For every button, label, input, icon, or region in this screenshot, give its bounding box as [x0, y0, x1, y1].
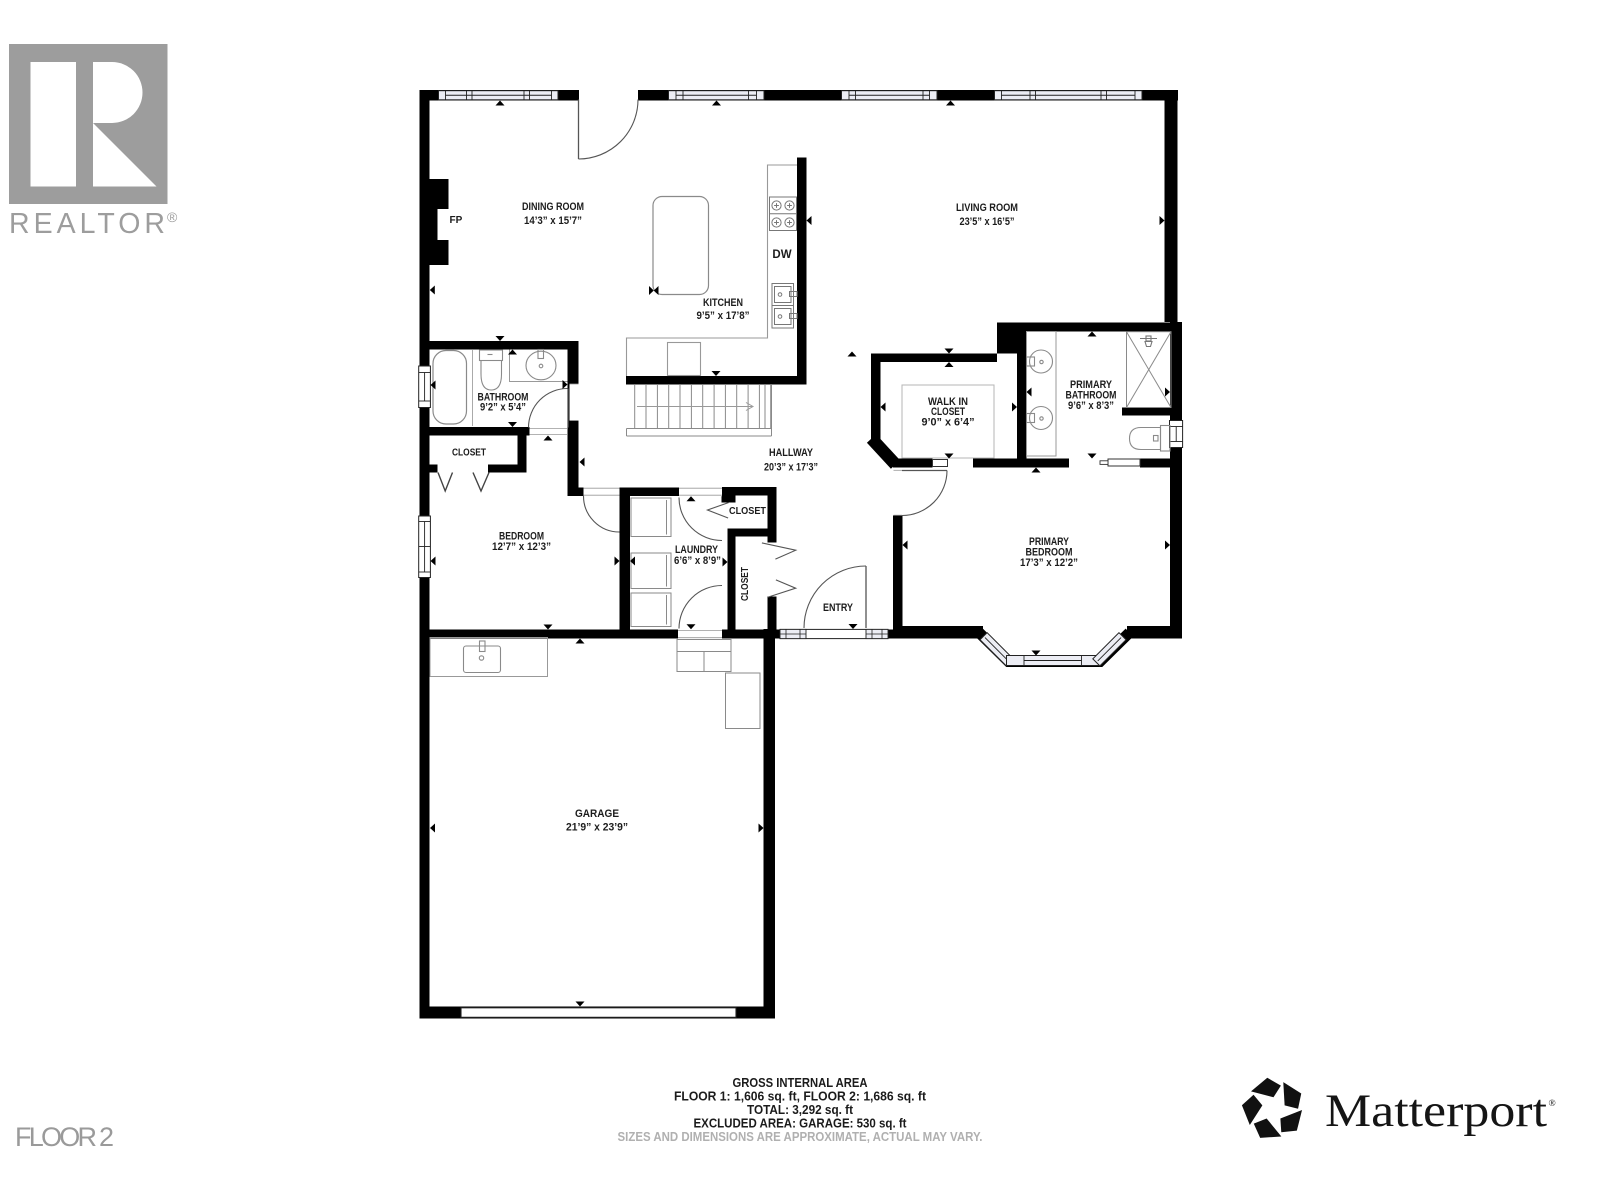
svg-text:SIZES AND DIMENSIONS ARE APPRO: SIZES AND DIMENSIONS ARE APPROXIMATE, AC…: [618, 1129, 983, 1144]
svg-text:21’9” x 23’9”: 21’9” x 23’9”: [566, 822, 628, 834]
svg-text:HALLWAY: HALLWAY: [769, 447, 814, 459]
svg-text:ENTRY: ENTRY: [823, 602, 854, 614]
svg-text:9’0” x 6’4”: 9’0” x 6’4”: [922, 417, 975, 429]
svg-text:CLOSET: CLOSET: [739, 567, 751, 601]
svg-text:DW: DW: [772, 249, 791, 261]
svg-text:CLOSET: CLOSET: [452, 447, 486, 459]
svg-text:FLOOR 2: FLOOR 2: [15, 1122, 115, 1152]
svg-text:LIVING ROOM: LIVING ROOM: [956, 202, 1018, 214]
svg-text:®: ®: [167, 209, 178, 225]
svg-text:DINING ROOM: DINING ROOM: [522, 201, 584, 213]
svg-text:KITCHEN: KITCHEN: [703, 297, 743, 309]
svg-text:17’3” x 12’2”: 17’3” x 12’2”: [1020, 557, 1078, 569]
svg-text:9’5” x 17’8”: 9’5” x 17’8”: [697, 310, 750, 322]
svg-text:9’6” x 8’3”: 9’6” x 8’3”: [1068, 400, 1114, 412]
svg-text:Matterport: Matterport: [1325, 1085, 1547, 1137]
svg-text:12’7” x 12’3”: 12’7” x 12’3”: [492, 541, 551, 553]
svg-text:FP: FP: [450, 215, 463, 226]
svg-text:6’6” x 8’9”: 6’6” x 8’9”: [674, 555, 721, 567]
svg-text:14’3” x 15’7”: 14’3” x 15’7”: [524, 215, 582, 227]
svg-text:23’5” x 16’5”: 23’5” x 16’5”: [960, 216, 1015, 228]
svg-text:CLOSET: CLOSET: [729, 505, 767, 517]
svg-text:®: ®: [1549, 1098, 1556, 1109]
svg-text:9’2” x 5’4”: 9’2” x 5’4”: [480, 402, 526, 414]
svg-text:20’3” x 17’3”: 20’3” x 17’3”: [764, 462, 818, 474]
svg-text:GARAGE: GARAGE: [575, 808, 619, 820]
